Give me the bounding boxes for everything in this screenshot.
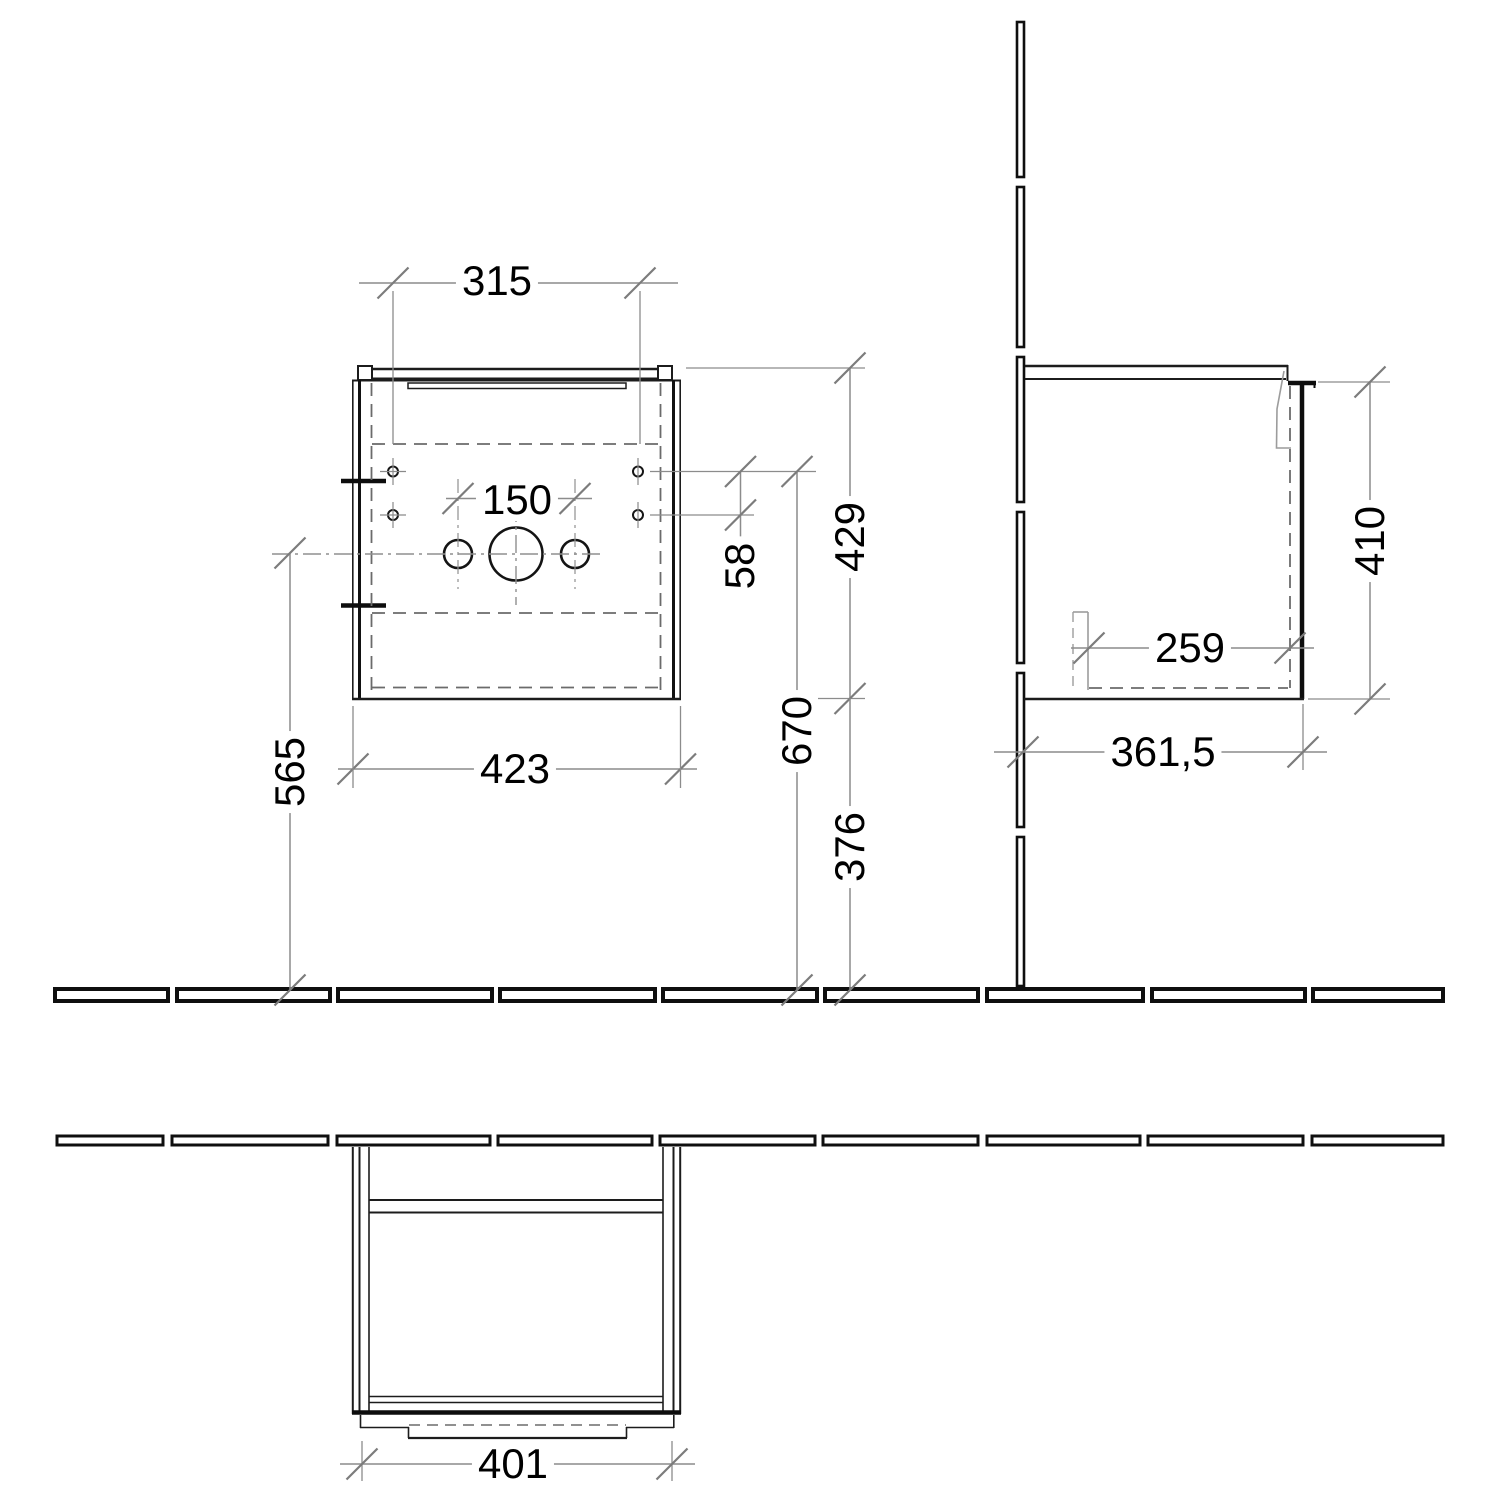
handle-groove <box>408 383 626 389</box>
corner-tab <box>658 366 672 380</box>
plan-view <box>340 1147 695 1481</box>
dim-label-hole-gap: 58 <box>719 537 761 596</box>
plan-wall <box>57 1136 1443 1145</box>
floor-segment <box>177 989 330 1001</box>
wall-segment <box>1017 673 1024 827</box>
dim-label-inner-depth: 259 <box>1149 627 1231 669</box>
floor-segment <box>1152 989 1305 1001</box>
wall-segment <box>1017 187 1024 347</box>
dim-label-faucet-spacing: 150 <box>476 479 558 521</box>
dim-label-total-height: 429 <box>829 496 871 578</box>
dim-label-bottom-to-floor: 376 <box>829 806 871 888</box>
wall-segment <box>57 1136 163 1145</box>
dim-label-total-depth: 361,5 <box>1104 731 1221 773</box>
wall-segment <box>1017 357 1024 502</box>
wall-segment <box>337 1136 490 1145</box>
floor-segment <box>663 989 817 1001</box>
wall-segment <box>498 1136 652 1145</box>
wall-segment <box>1312 1136 1443 1145</box>
drawing-linework <box>0 0 1500 1500</box>
wall-segment <box>1017 22 1024 177</box>
dim-label-door-width: 401 <box>472 1443 554 1485</box>
dim-label-top-width: 315 <box>456 260 538 302</box>
wall-segment <box>172 1136 328 1145</box>
dim-label-total-width: 423 <box>474 748 556 790</box>
side-wall <box>1017 22 1024 986</box>
floor-segment <box>500 989 655 1001</box>
floor-segment <box>987 989 1143 1001</box>
floor-segment <box>1313 989 1443 1001</box>
wall-segment <box>1017 837 1024 986</box>
wall-segment <box>987 1136 1140 1145</box>
floor-segment <box>338 989 492 1001</box>
wall-segment <box>1017 512 1024 663</box>
wall-segment <box>660 1136 815 1145</box>
floor-segment <box>55 989 168 1001</box>
wall-segment <box>1148 1136 1303 1145</box>
dim-label-holes-to-floor: 670 <box>776 690 818 772</box>
floor-line <box>55 989 1443 1001</box>
dim-label-center-to-floor: 565 <box>269 731 311 813</box>
corner-tab <box>358 366 372 380</box>
technical-drawing-page: 315 150 58 429 670 376 565 423 259 361,5… <box>0 0 1500 1500</box>
wall-segment <box>823 1136 978 1145</box>
side-view <box>994 365 1390 770</box>
front-view <box>272 268 866 1006</box>
dim-label-body-height: 410 <box>1349 500 1391 582</box>
